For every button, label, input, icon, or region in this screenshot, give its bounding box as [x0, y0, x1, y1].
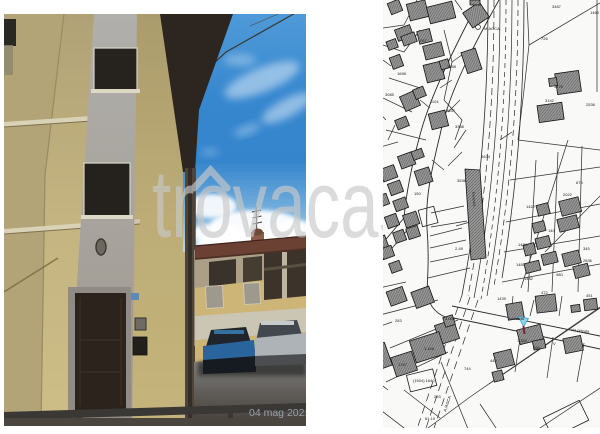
svg-text:1439: 1439: [497, 296, 507, 301]
svg-text:293: 293: [434, 394, 441, 399]
svg-text:1.448: 1.448: [424, 346, 435, 351]
svg-text:3388: 3388: [455, 124, 465, 129]
svg-text:3.003: 3.003: [445, 316, 456, 321]
svg-text:2-49: 2-49: [455, 246, 464, 251]
svg-text:1698: 1698: [397, 71, 407, 76]
svg-text:M.AGCA: M.AGCA: [484, 26, 500, 31]
svg-text:140: 140: [548, 228, 555, 233]
svg-text:1482: 1482: [524, 276, 534, 281]
svg-text:2634: 2634: [481, 154, 491, 159]
svg-text:04 mag 2021: 04 mag 2021: [249, 407, 310, 419]
svg-text:1484: 1484: [518, 242, 528, 247]
svg-text:3176: 3176: [554, 84, 564, 89]
svg-text:61.10: 61.10: [425, 416, 436, 421]
svg-text:1.334: 1.334: [517, 338, 528, 343]
svg-text:sotto via: sotto via: [509, 316, 525, 321]
svg-text:2536: 2536: [586, 102, 596, 107]
svg-text:490: 490: [533, 345, 540, 350]
svg-text:2022: 2022: [563, 192, 573, 197]
svg-text:472: 472: [541, 290, 548, 295]
svg-text:3142: 3142: [545, 98, 555, 103]
svg-text:3085: 3085: [385, 92, 395, 97]
svg-text:1422: 1422: [526, 204, 536, 209]
svg-text:V: V: [553, 341, 556, 346]
svg-text:345: 345: [583, 246, 590, 251]
svg-text:(1504) 1640: (1504) 1640: [413, 378, 435, 383]
svg-text:3637: 3637: [446, 108, 456, 113]
svg-text:726: 726: [541, 36, 548, 41]
svg-text:440: 440: [490, 358, 497, 363]
svg-text:744: 744: [464, 366, 471, 371]
svg-text:451: 451: [586, 293, 593, 298]
svg-text:1483: 1483: [516, 262, 526, 267]
svg-text:1104: 1104: [430, 99, 439, 104]
svg-text:283: 283: [395, 318, 402, 323]
svg-text:1469: 1469: [590, 10, 600, 15]
svg-text:1767: 1767: [398, 362, 408, 367]
svg-text:767: 767: [420, 38, 427, 43]
svg-text:3487: 3487: [552, 4, 562, 9]
svg-text:150: 150: [414, 191, 421, 196]
svg-text:3536: 3536: [457, 178, 467, 183]
svg-text:480: 480: [556, 272, 563, 277]
svg-text:3398: 3398: [447, 64, 457, 69]
svg-text:675: 675: [576, 180, 583, 185]
svg-text:2836: 2836: [583, 258, 593, 263]
